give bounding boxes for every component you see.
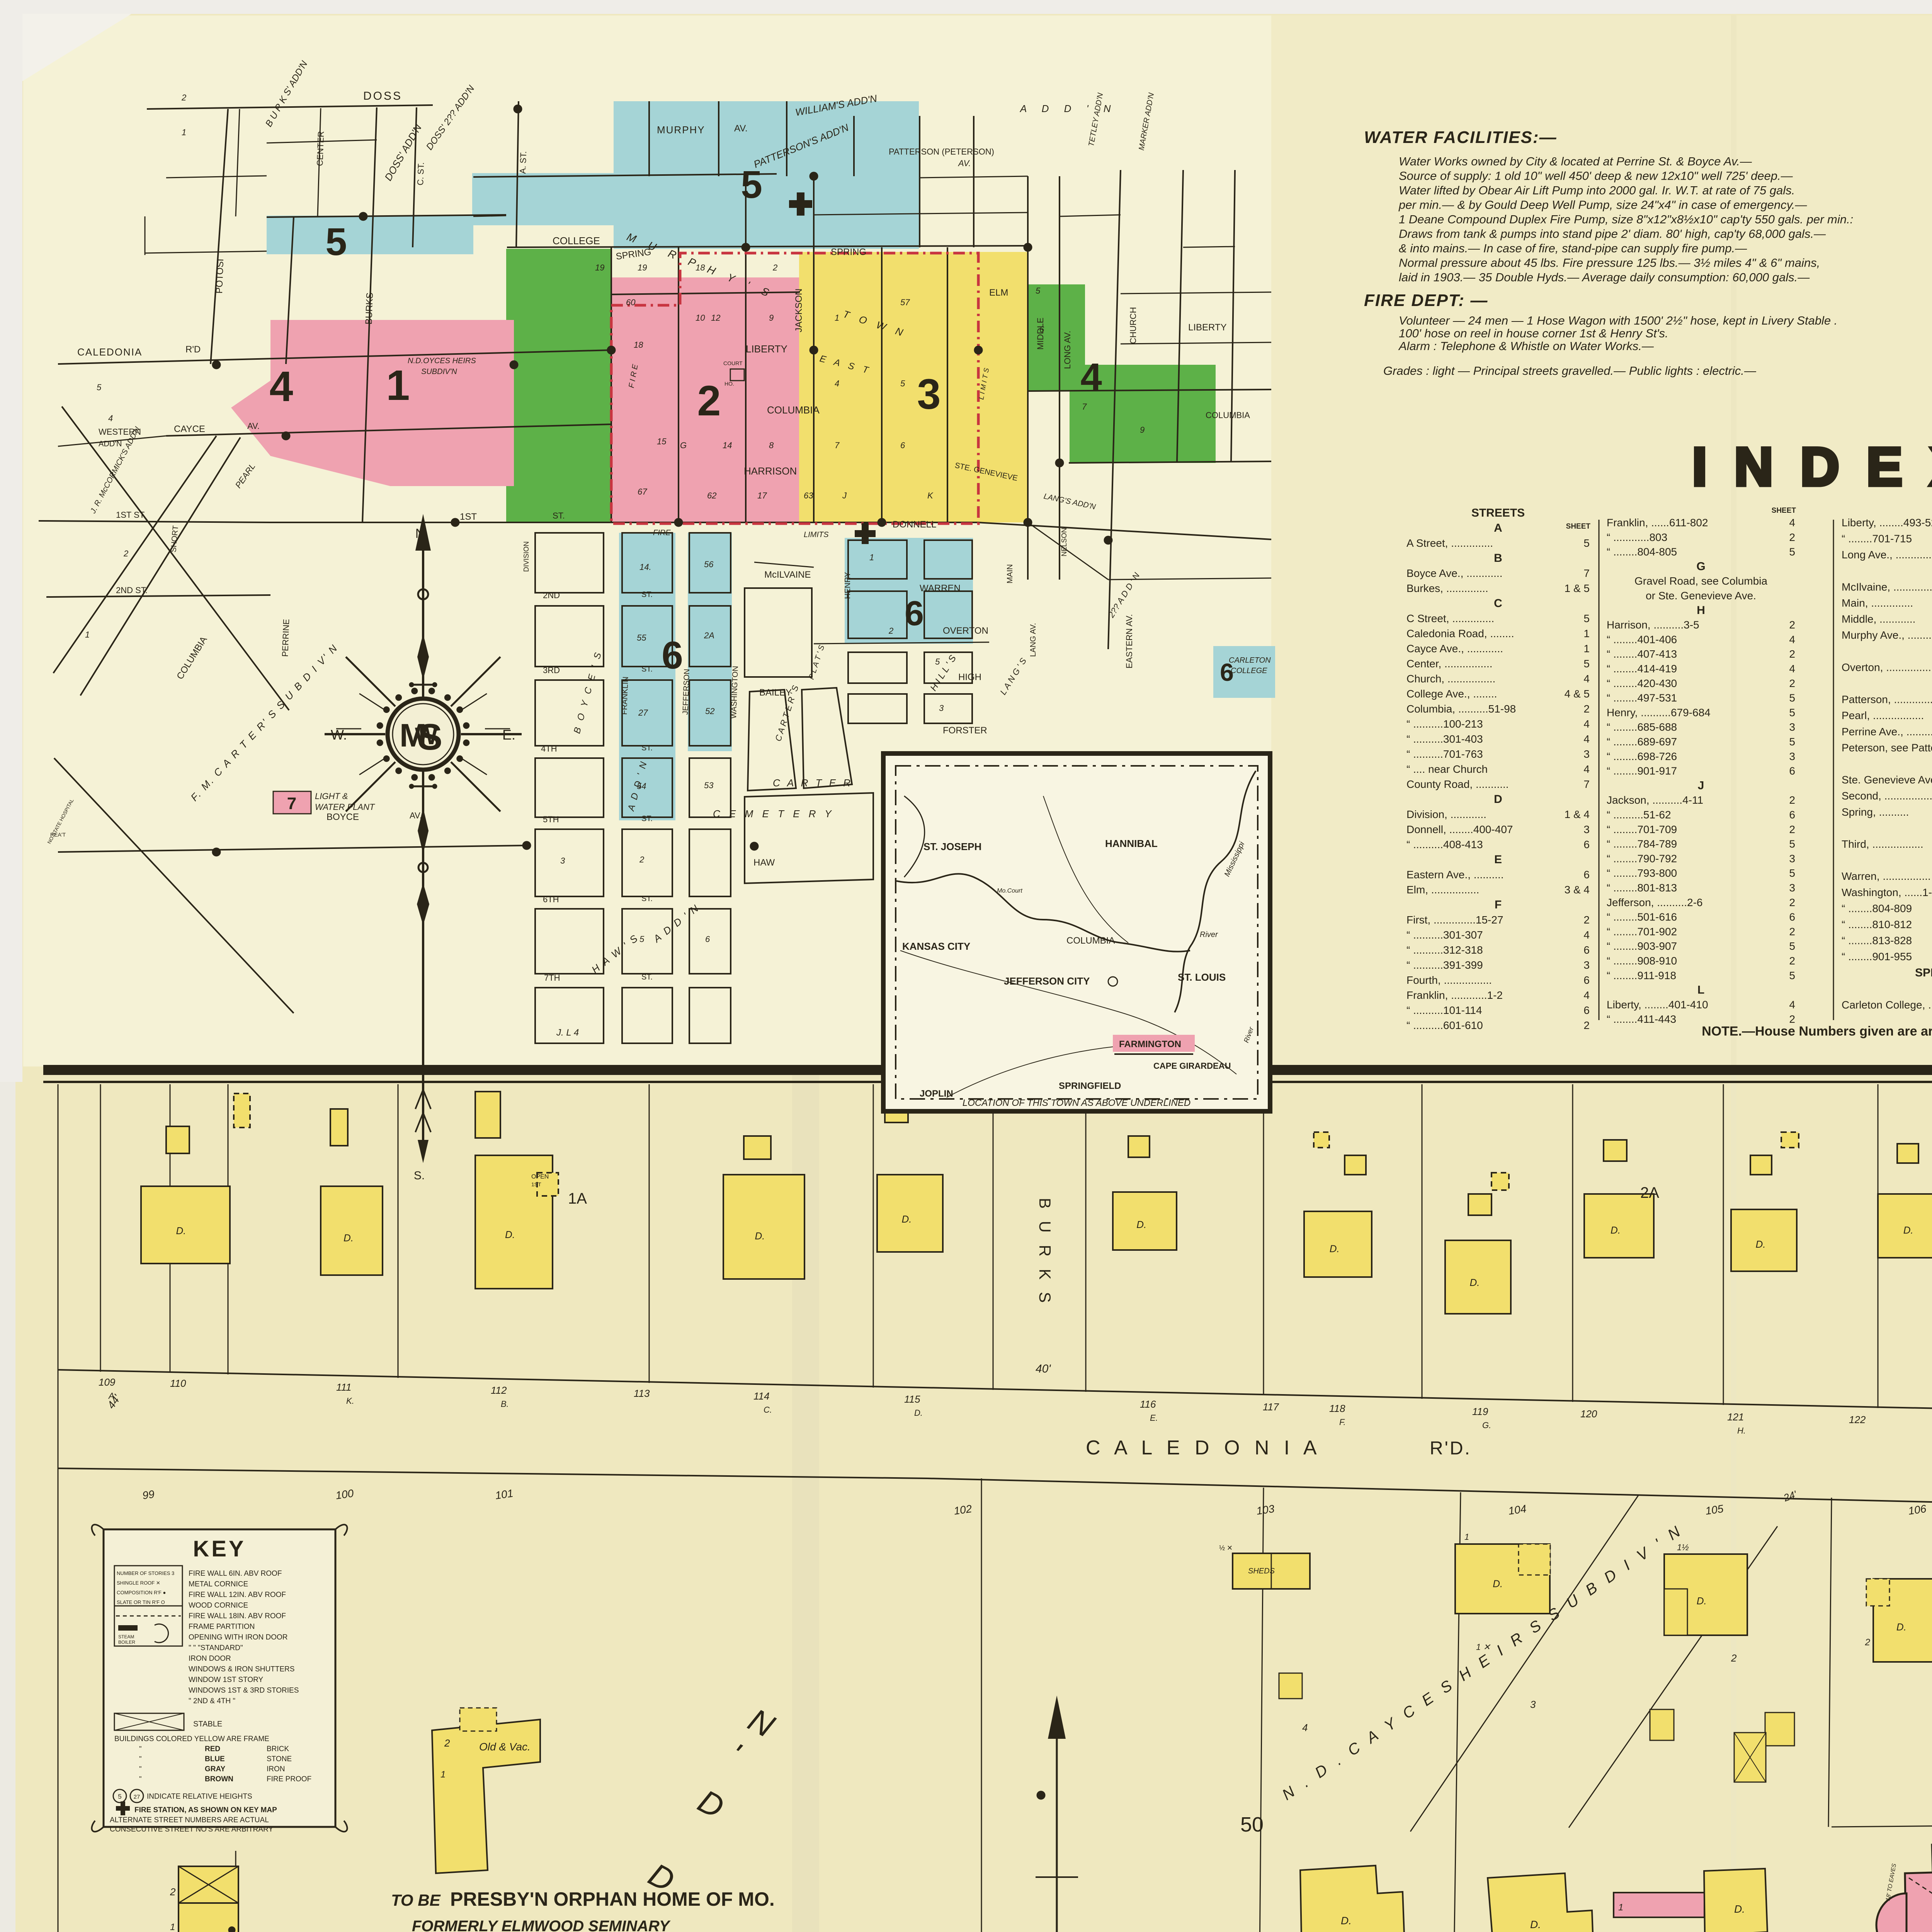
svg-text:“ ..........391-399: “ ..........391-399 <box>1406 959 1483 971</box>
svg-text:6: 6 <box>662 634 683 677</box>
svg-text:113: 113 <box>634 1388 650 1399</box>
svg-text:MURPHY: MURPHY <box>657 124 705 136</box>
svg-text:E: E <box>1494 853 1502 866</box>
svg-text:POTOSI: POTOSI <box>214 259 226 294</box>
svg-text:SPECIALS: SPECIALS <box>1915 966 1932 979</box>
svg-text:STEAM: STEAM <box>118 1634 134 1639</box>
svg-text:4: 4 <box>1789 663 1795 675</box>
svg-text:ST.: ST. <box>641 815 653 823</box>
svg-text:6: 6 <box>1789 911 1795 923</box>
svg-text:116: 116 <box>1140 1398 1156 1410</box>
svg-text:“ ..........301-403: “ ..........301-403 <box>1406 733 1483 745</box>
svg-text:D.: D. <box>505 1229 515 1240</box>
svg-text:6: 6 <box>1583 838 1590 850</box>
svg-text:6: 6 <box>1583 944 1590 956</box>
svg-text:62: 62 <box>707 491 716 500</box>
svg-text:1: 1 <box>170 1922 175 1932</box>
svg-text:BURKS: BURKS <box>364 293 375 325</box>
svg-text:BROWN: BROWN <box>205 1775 233 1783</box>
svg-text:J: J <box>842 491 847 500</box>
svg-text:1: 1 <box>386 362 410 409</box>
svg-text:N: N <box>415 526 425 541</box>
svg-text:& into mains.— In case of fir: & into mains.— In case of fire, stand-pi… <box>1399 241 1747 255</box>
svg-text:ST. LOUIS: ST. LOUIS <box>1178 971 1226 983</box>
svg-text:Murphy Ave., ...........: Murphy Ave., ........... <box>1842 629 1932 641</box>
svg-text:5: 5 <box>1789 736 1795 748</box>
svg-text:5: 5 <box>639 934 645 944</box>
svg-text:5: 5 <box>900 379 905 388</box>
svg-text:DIVISION: DIVISION <box>522 541 530 572</box>
svg-text:BUILDINGS COLORED YELLOW ARE F: BUILDINGS COLORED YELLOW ARE FRAME <box>114 1735 269 1743</box>
svg-text:C A R T E R: C A R T E R <box>773 777 853 789</box>
svg-text:2: 2 <box>697 377 721 425</box>
svg-text:3: 3 <box>939 703 944 713</box>
svg-text:WINDOWS & IRON SHUTTERS: WINDOWS & IRON SHUTTERS <box>189 1665 294 1673</box>
svg-text:COLLEGE: COLLEGE <box>1231 667 1267 675</box>
svg-text:3: 3 <box>1583 748 1590 760</box>
svg-text:R'D.: R'D. <box>1430 1438 1471 1459</box>
svg-text:2: 2 <box>1789 925 1795 937</box>
svg-text:54: 54 <box>637 781 646 791</box>
svg-text:FIRE STATION, AS SHOWN ON KEY: FIRE STATION, AS SHOWN ON KEY MAP <box>134 1806 277 1814</box>
svg-text:5: 5 <box>1789 940 1795 952</box>
svg-text:“ ........501-616: “ ........501-616 <box>1607 911 1677 923</box>
svg-text:Long Ave., ............: Long Ave., ............ <box>1842 549 1932 561</box>
svg-text:“ ............803: “ ............803 <box>1607 531 1667 543</box>
svg-text:101: 101 <box>495 1487 514 1502</box>
svg-text:STONE: STONE <box>267 1755 292 1763</box>
svg-text:COLUMBIA: COLUMBIA <box>767 404 820 416</box>
svg-text:D.: D. <box>1493 1578 1503 1590</box>
svg-text:7TH: 7TH <box>544 973 560 983</box>
svg-text:BOILER: BOILER <box>118 1639 135 1645</box>
svg-text:FIRE DEPT: —: FIRE DEPT: — <box>1364 291 1488 310</box>
svg-text:COLLEGE: COLLEGE <box>553 235 600 247</box>
svg-text:LANG AV.: LANG AV. <box>1029 623 1037 657</box>
svg-text:GRAY: GRAY <box>205 1765 225 1773</box>
svg-text:27: 27 <box>638 708 648 718</box>
svg-text:6: 6 <box>1789 809 1795 821</box>
svg-text:2: 2 <box>1789 823 1795 835</box>
svg-text:AV.: AV. <box>247 421 260 431</box>
svg-text:6: 6 <box>1583 974 1590 986</box>
svg-text:Pearl, .................: Pearl, ................. <box>1842 709 1924 721</box>
svg-text:BLUE: BLUE <box>205 1755 225 1763</box>
svg-text:KEY: KEY <box>193 1536 246 1561</box>
svg-text:2: 2 <box>1583 1019 1590 1031</box>
svg-text:WARREN: WARREN <box>920 583 961 594</box>
svg-text:Overton, ...............: Overton, ............... <box>1842 661 1931 673</box>
svg-text:4: 4 <box>1583 763 1590 775</box>
svg-text:A D D ' N: A D D ' N <box>1019 103 1117 114</box>
svg-text:COLUMBIA: COLUMBIA <box>1206 410 1250 420</box>
svg-text:D.: D. <box>344 1232 354 1244</box>
svg-text:112: 112 <box>491 1384 507 1396</box>
svg-text:Division, ............: Division, ............ <box>1406 808 1486 820</box>
svg-text:D.: D. <box>914 1408 923 1418</box>
svg-text:2: 2 <box>639 855 644 864</box>
svg-text:IRON: IRON <box>267 1765 285 1773</box>
svg-text:2A: 2A <box>1640 1184 1659 1201</box>
svg-text:HIGH: HIGH <box>958 672 981 682</box>
svg-text:D.: D. <box>1530 1918 1541 1930</box>
svg-text:4: 4 <box>1080 355 1102 399</box>
svg-text:" " "STANDARD": " " "STANDARD" <box>189 1644 243 1652</box>
svg-text:Volunteer — 24 men — 1 Hose Wa: Volunteer — 24 men — 1 Hose Wagon with 1… <box>1399 314 1837 327</box>
svg-text:A. ST.: A. ST. <box>518 151 528 174</box>
svg-text:or Ste. Genevieve Ave.: or Ste. Genevieve Ave. <box>1646 590 1756 602</box>
svg-text:MAIN: MAIN <box>1006 564 1014 583</box>
svg-text:50: 50 <box>1240 1813 1264 1836</box>
svg-text:5: 5 <box>325 220 347 264</box>
svg-text:SHEET: SHEET <box>1772 507 1796 515</box>
svg-text:118: 118 <box>1329 1403 1345 1414</box>
svg-text:ELM: ELM <box>989 287 1008 298</box>
svg-text:2: 2 <box>1731 1652 1737 1664</box>
svg-text:STABLE: STABLE <box>193 1720 222 1728</box>
svg-text:“ ........420-430: “ ........420-430 <box>1607 677 1677 689</box>
svg-text:Jackson, ..........4-11: Jackson, ..........4-11 <box>1607 794 1703 806</box>
svg-text:40': 40' <box>1036 1362 1051 1375</box>
svg-text:1: 1 <box>182 128 186 137</box>
svg-text:4: 4 <box>1789 633 1795 645</box>
svg-text:“ ........784-789: “ ........784-789 <box>1607 838 1677 850</box>
svg-text:2: 2 <box>1789 955 1795 967</box>
svg-text:1: 1 <box>440 1769 446 1780</box>
svg-text:“ .... near Church: “ .... near Church <box>1406 763 1488 775</box>
svg-text:W: W <box>415 723 438 750</box>
svg-text:SHEET: SHEET <box>1566 522 1591 531</box>
svg-text:Perrine Ave., ..........: Perrine Ave., .......... <box>1842 726 1932 738</box>
svg-text:E.: E. <box>1150 1413 1158 1423</box>
svg-text:NOTE.—House Numbers given are: NOTE.—House Numbers given are arbitrary. <box>1702 1024 1932 1039</box>
svg-text:5: 5 <box>1789 867 1795 879</box>
svg-text:D.: D. <box>755 1230 765 1242</box>
svg-text:C: C <box>1494 597 1502 610</box>
svg-text:B U R K S: B U R K S <box>1036 1198 1054 1306</box>
svg-text:Carleton College, .......: Carleton College, ....... <box>1842 999 1932 1011</box>
svg-text:College Ave., ........: College Ave., ........ <box>1406 688 1497 700</box>
svg-text:EASTERN AV.: EASTERN AV. <box>1124 614 1134 668</box>
svg-text:“ ..........312-318: “ ..........312-318 <box>1406 944 1483 956</box>
svg-text:55: 55 <box>637 633 646 643</box>
svg-text:1: 1 <box>85 630 90 639</box>
svg-text:2: 2 <box>1789 648 1795 660</box>
svg-text:“ ........685-688: “ ........685-688 <box>1607 721 1677 733</box>
svg-text:FORMERLY ELMWOOD SEMINARY: FORMERLY ELMWOOD SEMINARY <box>412 1918 671 1932</box>
svg-text:PERRINE: PERRINE <box>280 619 291 657</box>
svg-text:1: 1 <box>1583 643 1590 655</box>
svg-text:2: 2 <box>1583 914 1590 926</box>
svg-text:1: 1 <box>1618 1902 1623 1913</box>
svg-text:D.: D. <box>1896 1621 1906 1633</box>
svg-text:2: 2 <box>1789 794 1795 806</box>
svg-text:“ ........804-805: “ ........804-805 <box>1607 546 1677 558</box>
svg-text:RED: RED <box>205 1745 220 1753</box>
svg-text:6: 6 <box>905 594 924 633</box>
svg-text:60: 60 <box>626 298 636 307</box>
svg-text:5: 5 <box>1789 706 1795 718</box>
svg-text:COLUMBIA: COLUMBIA <box>1066 935 1115 946</box>
svg-text:“ ..........701-763: “ ..........701-763 <box>1406 748 1483 760</box>
svg-text:WATER FACILITIES:—: WATER FACILITIES:— <box>1364 128 1557 147</box>
svg-text:C E M E T E R Y: C E M E T E R Y <box>713 808 835 820</box>
svg-text:LIBERTY: LIBERTY <box>1188 322 1227 333</box>
svg-text:N.D.OYCES HEIRS: N.D.OYCES HEIRS <box>408 357 476 365</box>
svg-text:4TH: 4TH <box>541 744 557 753</box>
svg-text:LIMITS: LIMITS <box>804 531 829 539</box>
svg-text:56: 56 <box>704 560 714 569</box>
svg-text:E.: E. <box>502 727 515 743</box>
svg-text:FIRE PROOF: FIRE PROOF <box>267 1775 311 1783</box>
svg-text:D.: D. <box>1734 1903 1745 1915</box>
svg-text:2: 2 <box>1789 619 1795 631</box>
svg-text:Church, ................: Church, ................ <box>1406 673 1495 685</box>
svg-text:NUMBER OF STORIES 3: NUMBER OF STORIES 3 <box>117 1570 174 1576</box>
svg-text:L: L <box>1697 984 1704 997</box>
svg-text:PATTERSON (PETERSON): PATTERSON (PETERSON) <box>889 147 994 156</box>
svg-text:4: 4 <box>269 363 293 410</box>
svg-text:122: 122 <box>1849 1414 1866 1425</box>
svg-text:D: D <box>1494 793 1502 806</box>
svg-text:FRANKLIN: FRANKLIN <box>620 677 630 715</box>
svg-text:17: 17 <box>757 491 767 500</box>
svg-text:5: 5 <box>97 383 102 392</box>
svg-text:D.: D. <box>1756 1238 1766 1250</box>
svg-text:D.: D. <box>1470 1277 1480 1288</box>
svg-text:“ ..........51-62: “ ..........51-62 <box>1607 809 1671 821</box>
svg-text:1 Deane Compound Duplex Fire P: 1 Deane Compound Duplex Fire Pump, size … <box>1399 213 1853 226</box>
svg-text:S.: S. <box>414 1169 425 1182</box>
svg-text:Center, ................: Center, ................ <box>1406 658 1493 670</box>
svg-text:Water Works owned by City & lo: Water Works owned by City & located at P… <box>1399 155 1752 168</box>
svg-text:D.: D. <box>1136 1219 1146 1230</box>
svg-text:B: B <box>1494 552 1502 565</box>
svg-text:OPEN: OPEN <box>531 1173 549 1180</box>
svg-text:OPENING WITH IRON DOOR: OPENING WITH IRON DOOR <box>189 1633 288 1641</box>
svg-text:2: 2 <box>123 549 128 558</box>
svg-text:G.: G. <box>1482 1420 1491 1430</box>
svg-text:D.: D. <box>176 1225 186 1236</box>
svg-text:15: 15 <box>657 437 667 446</box>
svg-text:7: 7 <box>1583 567 1590 579</box>
svg-text:109: 109 <box>99 1376 115 1388</box>
svg-text:2: 2 <box>444 1737 450 1749</box>
svg-text:“ ..........601-610: “ ..........601-610 <box>1406 1019 1483 1031</box>
svg-text:5: 5 <box>1789 546 1795 558</box>
svg-text:AV.: AV. <box>410 811 422 820</box>
svg-text:“ ........401-406: “ ........401-406 <box>1607 633 1677 645</box>
svg-text:5: 5 <box>1789 838 1795 850</box>
svg-text:": " <box>139 1765 141 1773</box>
svg-text:CHURCH: CHURCH <box>1128 307 1138 344</box>
svg-text:4: 4 <box>1583 733 1590 745</box>
svg-text:Alarm : Telephone & Whistle: Alarm : Telephone & Whistle on Water Wor… <box>1398 339 1654 353</box>
svg-text:OVERTON: OVERTON <box>943 626 988 636</box>
svg-text:7: 7 <box>835 440 840 450</box>
svg-text:1ST: 1ST <box>460 512 477 522</box>
svg-text:12: 12 <box>711 313 720 323</box>
svg-text:ALTERNATE STREET NUMBERS ARE A: ALTERNATE STREET NUMBERS ARE ACTUAL <box>110 1816 269 1824</box>
svg-text:5: 5 <box>1583 537 1590 549</box>
svg-text:C A L E D O N I A: C A L E D O N I A <box>1086 1437 1321 1459</box>
svg-text:2: 2 <box>181 93 186 102</box>
svg-text:FRAME PARTITION: FRAME PARTITION <box>189 1623 255 1631</box>
svg-text:McILVAINE: McILVAINE <box>764 570 811 580</box>
svg-text:A: A <box>1494 522 1502 534</box>
svg-text:River: River <box>1200 930 1218 939</box>
svg-text:½ ✕: ½ ✕ <box>1219 1544 1233 1552</box>
svg-text:F: F <box>1495 898 1502 911</box>
svg-text:5TH: 5TH <box>543 815 559 824</box>
svg-text:4: 4 <box>1583 989 1590 1001</box>
svg-text:AV.: AV. <box>734 123 748 134</box>
svg-text:Franklin, ......611-802: Franklin, ......611-802 <box>1607 517 1708 529</box>
svg-text:Old & Vac.: Old & Vac. <box>479 1741 531 1753</box>
svg-text:114: 114 <box>753 1390 769 1402</box>
svg-text:27: 27 <box>134 1794 140 1800</box>
svg-text:WINDOWS 1ST & 3RD STORIES: WINDOWS 1ST & 3RD STORIES <box>189 1687 299 1695</box>
svg-text:“ ........701-709: “ ........701-709 <box>1607 823 1677 835</box>
svg-text:C.: C. <box>764 1405 772 1415</box>
svg-text:LONG AV.: LONG AV. <box>1063 331 1072 369</box>
svg-text:9: 9 <box>769 313 774 323</box>
svg-text:R'D: R'D <box>185 344 201 355</box>
svg-text:Second, ................: Second, ................ <box>1842 790 1932 802</box>
svg-text:Third, .................: Third, ................. <box>1842 838 1923 850</box>
svg-text:“ ........911-918: “ ........911-918 <box>1607 969 1676 981</box>
svg-text:53: 53 <box>704 781 714 790</box>
svg-text:Patterson, .............: Patterson, ............. <box>1842 694 1932 706</box>
svg-text:14.: 14. <box>639 562 651 572</box>
svg-text:5: 5 <box>1789 969 1795 981</box>
svg-text:“ ........801-813: “ ........801-813 <box>1607 882 1677 894</box>
svg-text:Jefferson, ..........2-6: Jefferson, ..........2-6 <box>1607 896 1703 908</box>
svg-text:First, ..............15-27: First, ..............15-27 <box>1406 914 1503 926</box>
svg-text:Peterson, see Patterson.: Peterson, see Patterson. <box>1842 742 1932 753</box>
svg-text:COURT: COURT <box>723 360 743 366</box>
svg-text:104: 104 <box>1508 1503 1527 1517</box>
svg-text:“ ..........301-307: “ ..........301-307 <box>1406 929 1483 941</box>
svg-text:“ ........804-809: “ ........804-809 <box>1842 902 1912 914</box>
svg-text:“ ........790-792: “ ........790-792 <box>1607 852 1677 864</box>
svg-text:19: 19 <box>595 263 604 272</box>
svg-text:CONSECUTIVE STREET NO'S ARE AR: CONSECUTIVE STREET NO'S ARE ARBITRARY <box>110 1825 273 1833</box>
svg-text:“ ........810-812: “ ........810-812 <box>1842 918 1912 930</box>
svg-text:57: 57 <box>900 298 910 307</box>
svg-text:D.: D. <box>1903 1224 1913 1236</box>
svg-text:Ste. Genevieve Ave.,: Ste. Genevieve Ave., <box>1842 774 1932 786</box>
svg-text:5: 5 <box>1583 658 1590 670</box>
svg-text:G: G <box>1696 560 1705 573</box>
svg-text:WINDOW 1ST STORY: WINDOW 1ST STORY <box>189 1676 264 1684</box>
svg-text:19: 19 <box>638 263 647 272</box>
svg-text:“ ........497-531: “ ........497-531 <box>1607 692 1677 704</box>
svg-text:4: 4 <box>1583 718 1590 730</box>
svg-text:106: 106 <box>1908 1503 1927 1517</box>
svg-text:B.: B. <box>501 1399 509 1409</box>
svg-text:1½: 1½ <box>1677 1543 1689 1552</box>
svg-text:“ ........689-697: “ ........689-697 <box>1607 736 1677 748</box>
svg-text:4: 4 <box>1302 1722 1308 1733</box>
svg-text:CALEDONIA: CALEDONIA <box>77 346 142 358</box>
svg-text:HARRISON: HARRISON <box>744 465 797 477</box>
svg-text:4: 4 <box>835 379 839 388</box>
svg-text:DONNELL: DONNELL <box>893 519 936 530</box>
svg-text:WOOD CORNICE: WOOD CORNICE <box>189 1602 248 1610</box>
svg-text:NELSON: NELSON <box>1060 528 1068 556</box>
svg-text:1: 1 <box>1583 628 1590 639</box>
svg-text:ST.: ST. <box>641 665 653 673</box>
svg-text:111: 111 <box>336 1381 352 1393</box>
svg-text:4: 4 <box>1789 517 1795 529</box>
svg-text:“ ........698-726: “ ........698-726 <box>1607 750 1677 762</box>
svg-text:100' hose on reel in house cor: 100' hose on reel in house corner 1st & … <box>1399 327 1668 340</box>
svg-text:1 ✕: 1 ✕ <box>1476 1642 1490 1652</box>
svg-text:FIRE: FIRE <box>653 529 671 537</box>
svg-text:Elm, ................: Elm, ................ <box>1406 884 1479 896</box>
svg-text:115: 115 <box>904 1393 920 1405</box>
svg-text:4: 4 <box>1583 673 1590 685</box>
svg-text:2: 2 <box>170 1886 176 1898</box>
svg-text:2ND ST.: 2ND ST. <box>116 585 148 595</box>
svg-text:63: 63 <box>804 491 813 500</box>
svg-text:102: 102 <box>953 1503 973 1517</box>
svg-text:CAPE GIRARDEAU: CAPE GIRARDEAU <box>1153 1061 1231 1071</box>
svg-text:A Street, ..............: A Street, .............. <box>1406 537 1493 549</box>
svg-text:100: 100 <box>335 1487 355 1502</box>
svg-text:H: H <box>1697 604 1705 617</box>
svg-text:TO BE: TO BE <box>391 1891 441 1909</box>
svg-text:6: 6 <box>1583 869 1590 881</box>
svg-text:ST. JOSEPH: ST. JOSEPH <box>923 841 981 852</box>
svg-text:Burkes, ..............: Burkes, .............. <box>1406 582 1488 594</box>
svg-text:4: 4 <box>108 413 113 423</box>
svg-text:1 & 5: 1 & 5 <box>1565 582 1590 594</box>
svg-text:W.: W. <box>331 727 347 743</box>
svg-text:HANNIBAL: HANNIBAL <box>1105 838 1158 849</box>
svg-text:FIRE WALL 6IN. ABV ROOF: FIRE WALL 6IN. ABV ROOF <box>189 1570 282 1578</box>
svg-text:Columbia, ..........51-98: Columbia, ..........51-98 <box>1406 703 1516 715</box>
svg-text:": " <box>139 1755 141 1763</box>
svg-text:3: 3 <box>560 856 565 866</box>
svg-text:5: 5 <box>1036 286 1041 296</box>
svg-text:10: 10 <box>696 313 705 323</box>
svg-text:K: K <box>927 491 934 500</box>
svg-text:2A: 2A <box>704 631 714 640</box>
svg-text:6: 6 <box>1583 1004 1590 1016</box>
svg-text:9: 9 <box>1140 425 1145 435</box>
svg-text:": " <box>139 1745 141 1753</box>
svg-text:BRICK: BRICK <box>267 1745 289 1753</box>
svg-text:67: 67 <box>638 487 647 497</box>
svg-text:3: 3 <box>1789 750 1795 762</box>
svg-text:HO.: HO. <box>724 381 734 387</box>
svg-text:": " <box>139 1775 141 1783</box>
svg-text:ST.: ST. <box>553 511 565 520</box>
svg-text:“ ........908-910: “ ........908-910 <box>1607 955 1677 967</box>
svg-text:D.: D. <box>1330 1243 1340 1254</box>
svg-text:" 2ND & 4TH ": " 2ND & 4TH " <box>189 1697 235 1705</box>
svg-text:CENTER: CENTER <box>315 131 326 166</box>
svg-text:WATER PLANT: WATER PLANT <box>315 802 375 812</box>
svg-text:6: 6 <box>1789 765 1795 777</box>
svg-text:5: 5 <box>741 163 762 206</box>
svg-text:4 & 5: 4 & 5 <box>1565 688 1590 700</box>
svg-text:D.: D. <box>902 1213 912 1225</box>
svg-text:2: 2 <box>1789 896 1795 908</box>
svg-text:Fourth, ................: Fourth, ................ <box>1406 974 1492 986</box>
